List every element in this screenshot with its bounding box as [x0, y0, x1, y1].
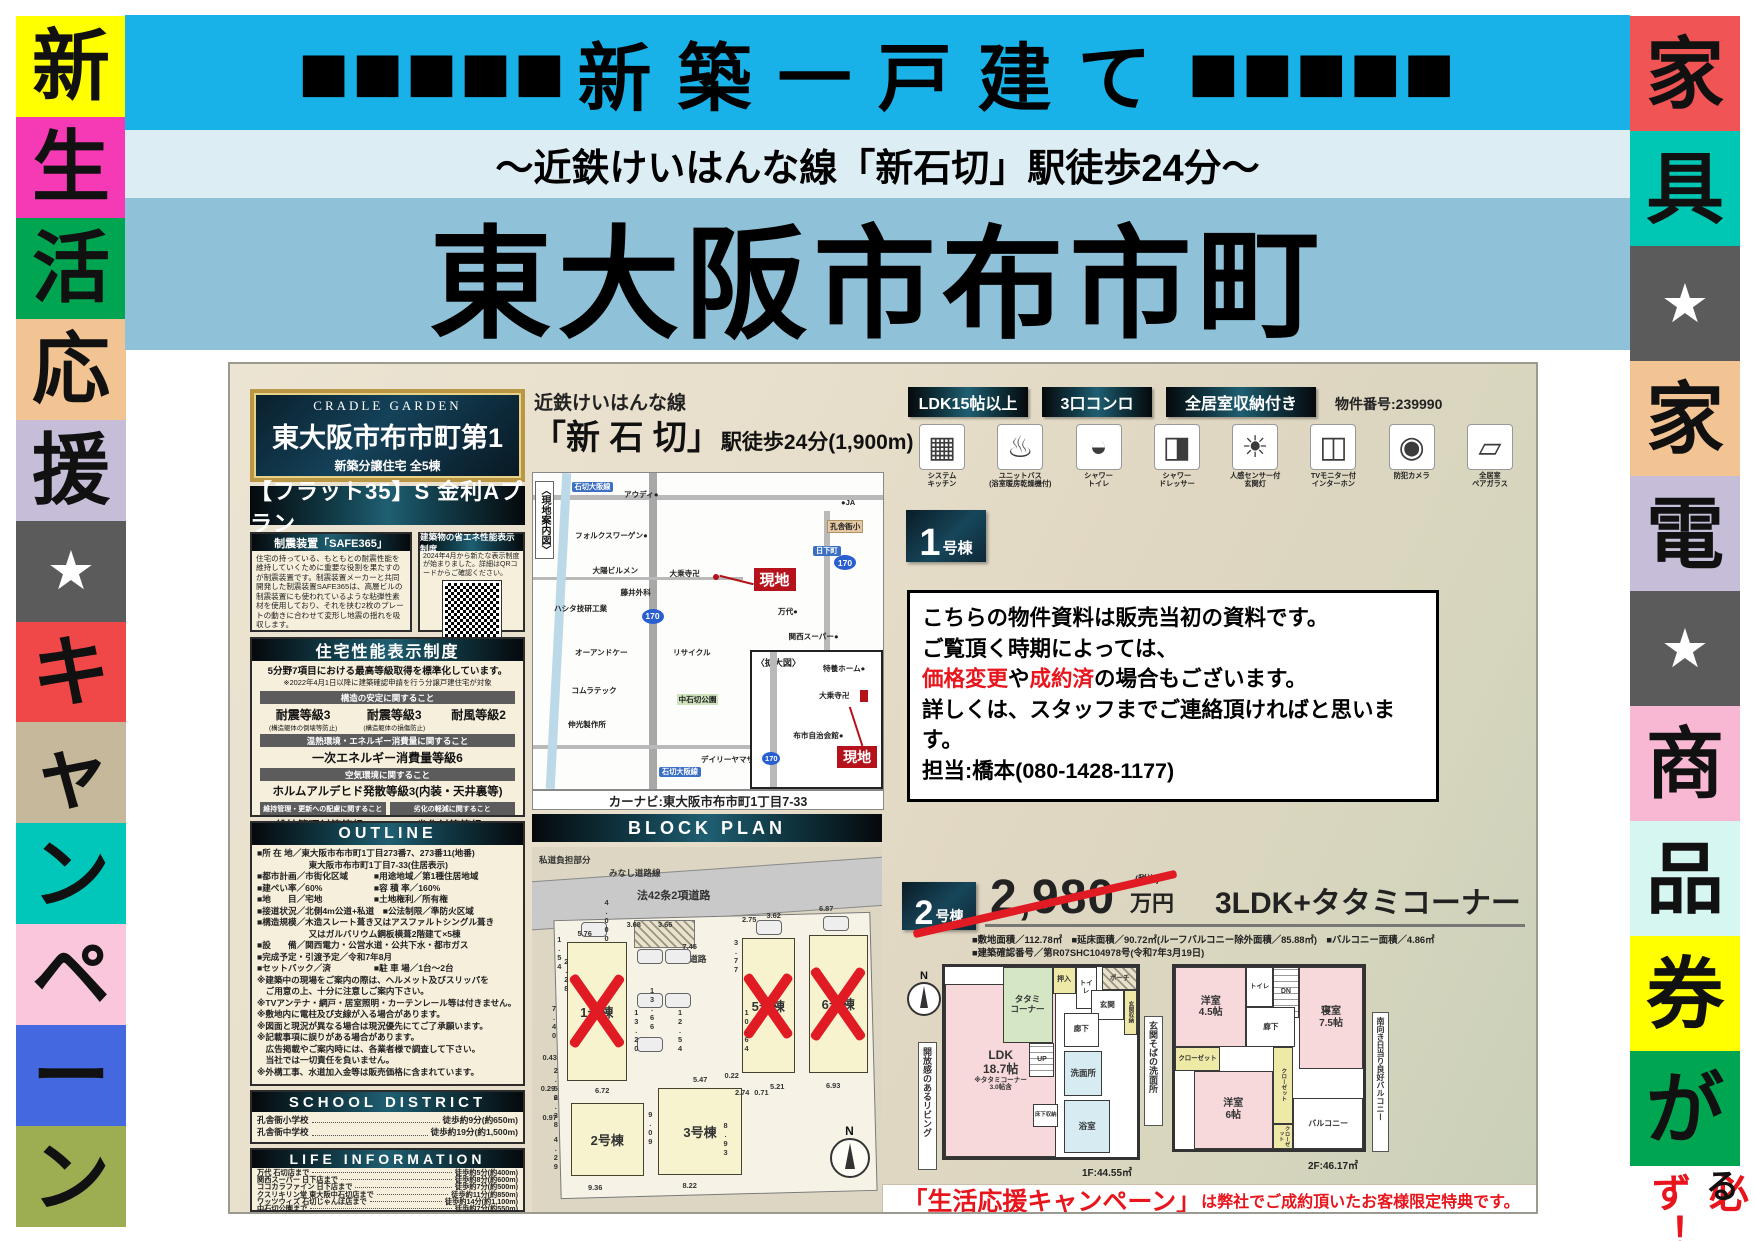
lot-name: 1号棟 — [580, 1002, 613, 1021]
seismic-grade: 耐震等級3 — [363, 706, 425, 723]
kitchen-icon: ▦ — [919, 424, 965, 470]
outline-row: 広告掲載やご案内時には、各業者様で調査して下さい。 — [257, 1044, 518, 1056]
feature-badge: 全居室収納付き — [1166, 387, 1316, 417]
security-camera-icon: ◉ — [1389, 424, 1435, 470]
performance-lead2: ※2022年4月1日以降に建築確認申請を行う分譲戸建住宅が対象 — [252, 677, 523, 688]
outline-row: ※記載事項に誤りがある場合があります。 — [257, 1032, 518, 1044]
notice-line: こちらの物件資料は販売当初の資料です。 — [922, 603, 1424, 634]
outline-row: ※TVアンテナ・網戸・居室照明・カーテンレール等は付きません。 — [257, 998, 518, 1010]
dim-label: 0.29 — [541, 1084, 555, 1093]
map-poi-label: ●JA — [841, 498, 855, 507]
outline-row: ※外構工事、水道加入金等は販売価格に含まれています。 — [257, 1067, 518, 1079]
price-unit: 万円 — [1130, 886, 1174, 918]
strip-moraeru-text: もらえる — [1695, 1168, 1755, 1241]
feature-badge: LDK15帖以上 — [908, 387, 1028, 417]
energy-grade: 一次エネルギー消費量等級6 — [252, 749, 523, 766]
poi-name: 中石切公園まで — [257, 1205, 307, 1212]
plaque-title: 東大阪市布市町第1 — [272, 416, 503, 455]
strip-char: キ — [16, 622, 126, 723]
life-information-box: LIFE INFORMATION 万代 石切店まで徒歩約5分(約400m) 関西… — [250, 1148, 525, 1212]
plan-label: 法42条2項道路 — [637, 887, 710, 903]
notice-line: 価格変更や成約済の場合もございます。 — [922, 664, 1424, 695]
seismic-grade-sub: (構造躯体の損傷防止) — [363, 723, 425, 732]
dim-label: 13.66 — [648, 986, 657, 1031]
map-poi-label: 万代● — [778, 606, 798, 617]
performance-bar4b: 劣化の軽減に関すること — [390, 802, 516, 815]
feature-item: ◨ シャワー ドレッサー — [1141, 424, 1213, 489]
map-poi-label: 大陽ビルメン — [593, 565, 639, 576]
feature-label: ユニットバス (浴室暖房乾燥機付) — [989, 472, 1051, 489]
feature-badge: 3口コンロ — [1042, 387, 1152, 417]
map-inset: 〈拡大図〉 特養ホーム● 大乗寺卍 布市自治会館● 170 現地 — [750, 650, 883, 789]
feature-label: システム キッチン — [928, 472, 957, 489]
room-tatami: タタミ コーナー — [1003, 967, 1053, 1043]
compass-icon: N — [906, 970, 942, 1016]
contact-line: 担当:橋本(080-1428-1177) — [922, 756, 1424, 787]
route-170-shield: 170 — [834, 555, 856, 570]
dim-label: 13.20 — [632, 1008, 641, 1053]
map-road-tag: 日下町 — [813, 546, 841, 556]
strip-char: ペ — [16, 924, 126, 1025]
lot-name: 3号棟 — [683, 1122, 716, 1141]
strip-char: 品 — [1630, 821, 1740, 936]
school-row: 孔舎衙小学校徒歩約9分(約650m) — [257, 1114, 518, 1126]
unit2-spec1: ■敷地面積／112.78㎡ ■延床面積／90.72㎡(ルーフバルコニー除外面積／… — [972, 932, 1532, 946]
room-oshiire: 押入 — [1053, 967, 1076, 994]
wind-grade: 耐風等級2 — [451, 706, 506, 732]
qr-code — [443, 581, 501, 639]
feature-label: TVモニター付 インターホン — [1311, 472, 1356, 489]
strip-char: 家 — [1630, 16, 1740, 131]
pair-glass-icon: ▱ — [1467, 424, 1513, 470]
notice-text: や — [1008, 667, 1030, 691]
car-outline — [637, 949, 663, 964]
lot-6: 6号棟 — [809, 935, 869, 1074]
map-poi-label: ハシタ技研工業 — [554, 603, 607, 614]
main-title: 東大阪市布市町 — [125, 198, 1630, 350]
left-campaign-strip: 新 生 活 応 援 ★ キ ャ ン ペ ー ン — [16, 16, 126, 1227]
block-plan-title: BLOCK PLAN — [532, 814, 882, 842]
energy-body: 2024年4月から新たな表示制度が始まりました。詳細はQRコードからご確認くださ… — [420, 551, 523, 580]
dim-label: 4.29 — [551, 1135, 560, 1171]
dim-label: 3.62 — [767, 911, 781, 920]
performance-bar3: 空気環境に関すること — [260, 768, 515, 781]
feature-item: ◫ TVモニター付 インターホン — [1297, 424, 1369, 489]
strip-char: 家 — [1630, 361, 1740, 476]
outline-row: ■接道状況／北側4m公道+私道 ■公法制限／準防火区域 — [257, 906, 518, 918]
strip-char: 電 — [1630, 476, 1740, 591]
room-porch: ポーチ — [1102, 967, 1137, 990]
dim-label: 3.66 — [658, 920, 672, 929]
outline-row: 当社では一切責任を負いません。 — [257, 1055, 518, 1067]
fp2-area: 2F:46.17㎡ — [1308, 1157, 1358, 1172]
car-outline — [665, 949, 691, 964]
school-row: 孔舎衙中学校徒歩約19分(約1,500m) — [257, 1126, 518, 1138]
school-distance: 徒歩約19分(約1,500m) — [431, 1126, 518, 1138]
feature-item: ◒ シャワー トイレ — [1063, 424, 1135, 489]
station-name: 「新 石 切」 — [532, 419, 721, 457]
room-closet: クローゼット — [1273, 1047, 1294, 1123]
map-poi-label: リサイクル — [673, 647, 711, 658]
dim-label: 5.21 — [770, 1082, 784, 1091]
plan-label: みなし道路線 — [609, 867, 661, 879]
dim-label: 6.72 — [595, 1086, 609, 1095]
stairs-up: UP — [1029, 1043, 1054, 1077]
feature-item: ♨ ユニットバス (浴室暖房乾燥機付) — [984, 424, 1056, 489]
floor-plan-type: 3LDK+タタミコーナー — [1215, 878, 1521, 922]
strip-char: ャ — [16, 722, 126, 823]
road-line — [770, 652, 777, 787]
notice-text: の場合もございます。 — [1094, 667, 1307, 691]
outline-row: ■構造規模／木造スレート葺き又はアスファルトシングル葺き — [257, 917, 518, 929]
lot-2: 2号棟 — [571, 1103, 645, 1176]
room-floor-storage: 床下収納 — [1033, 1104, 1058, 1127]
unit-suffix: 号棟 — [943, 537, 973, 558]
safe365-body: 住宅の持っている、もともとの耐震性能を維持していくために重要な役割を果たすのが制… — [252, 551, 410, 633]
room-closet: クローゼット — [1273, 1124, 1294, 1149]
site-pointer-line — [849, 707, 863, 746]
strip-char: 活 — [16, 218, 126, 319]
room-label: LDK 18.7帖 — [983, 1049, 1018, 1077]
carnavi-address: カーナビ:東大阪市布市町1丁目7-33 — [532, 790, 884, 810]
feature-item: ▦ システム キッチン — [906, 424, 978, 489]
station-walk-time: 駅徒歩24分(1,900m) — [721, 431, 914, 454]
dim-label: 0.22 — [725, 1071, 739, 1080]
performance-bar4a: 維持管理・更新への配慮に関すること — [260, 802, 386, 815]
car-outline — [665, 993, 691, 1008]
lot-1: 1号棟 — [567, 942, 627, 1081]
school-name: 孔舎衙小学校 — [257, 1114, 309, 1126]
dim-label: 2.74 — [735, 1088, 749, 1097]
map-temple-label: 大乗寺卍 — [670, 568, 700, 579]
dim-label: 2.75 — [742, 915, 756, 924]
unit-number: 2 — [915, 896, 934, 930]
strip-char: 援 — [16, 420, 126, 521]
car-outline — [756, 920, 782, 935]
feature-item: ◉ 防犯カメラ — [1376, 424, 1448, 489]
map-road-tag: 石切大阪線 — [572, 482, 614, 492]
fp1-callout-right: 玄関そばの洗面所 — [1144, 1016, 1163, 1126]
compass-icon: N — [830, 1124, 870, 1180]
room-hall: 廊下 — [1246, 1007, 1295, 1047]
banner-squares-right: ■■■■■ — [1188, 30, 1458, 116]
brand-plaque: CRADLE GARDEN 東大阪市布市町第1 新築分譲住宅 全5棟 — [250, 389, 525, 482]
notice-line: 詳しくは、スタッフまでご連絡頂ければと思います。 — [922, 695, 1424, 756]
map-poi-label: コムラテック — [572, 685, 617, 696]
safe365-title: 制震装置「SAFE365」 — [252, 534, 410, 551]
price-change-text: 価格変更 — [922, 667, 1008, 691]
dim-label: 0.97 — [543, 1113, 557, 1122]
intercom-icon: ◫ — [1310, 424, 1356, 470]
map-poi-label: アウディ● — [624, 489, 658, 500]
strip-char: 券 — [1630, 936, 1740, 1051]
dim-label: 2.38 — [551, 1093, 560, 1129]
strip-char: ン — [16, 823, 126, 924]
right-campaign-strip: 家 具 ★ 家 電 ★ 商 品 券 が — [1630, 16, 1740, 1166]
floorplan-2f: 洋室 4.5帖 トイレ DN 寝室 7.5帖 廊下 クローゼット 洋室 6帖 ク… — [1172, 964, 1366, 1152]
map-temple-label: 大乗寺卍 — [819, 690, 849, 701]
car-outline — [823, 916, 849, 931]
star-icon: ★ — [1630, 591, 1740, 706]
school-district-box: SCHOOL DISTRICT 孔舎衙小学校徒歩約9分(約650m) 孔舎衙中学… — [250, 1090, 525, 1144]
map-poi-label: 布市自治会館● — [793, 730, 843, 741]
campaign-highlight: 「生活応援キャンペーン」 — [902, 1182, 1201, 1214]
outline-row: 東大阪市布市町1丁目7-33(住居表示) — [257, 860, 518, 872]
map-poi-label: 関西スーパー● — [789, 631, 839, 642]
lot-name: 2号棟 — [591, 1130, 624, 1149]
dim-label: 5.76 — [578, 929, 592, 938]
feature-item: ☀ 人感センサー付 玄関灯 — [1219, 424, 1291, 489]
room-senmen: 洗面所 — [1064, 1051, 1102, 1097]
dim-label: 4.000 — [602, 898, 611, 943]
feature-label: 全居室 ペアガラス — [1472, 472, 1508, 489]
map-school-label: 孔舎衙小 — [827, 520, 863, 533]
room-yoshitsu-45: 洋室 4.5帖 — [1175, 967, 1246, 1047]
map-poi-label: 伸光製作所 — [568, 719, 606, 730]
safe365-box: 制震装置「SAFE365」 住宅の持っている、もともとの耐震性能を維持していくた… — [250, 532, 412, 632]
banner-squares-left: ■■■■■ — [298, 30, 568, 116]
school-name: 孔舎衙中学校 — [257, 1126, 309, 1138]
dim-label: 9.09 — [646, 1110, 655, 1146]
outline-row: ■地 目／宅地 ■土地権利／所有権 — [257, 894, 518, 906]
divider-line — [985, 924, 1525, 927]
flat35-banner: 【フラット35】S 金利Aプラン — [250, 486, 525, 525]
sold-out-text: 成約済 — [1030, 667, 1095, 691]
dim-label: 0.43 — [543, 1053, 557, 1062]
site-marker: 現地 — [754, 568, 796, 591]
fp2-callout-right: 南向き日当り良好バルコニー — [1372, 1012, 1389, 1152]
unit1-badge: 1 号棟 — [906, 510, 986, 562]
map-road-tag: 石切大阪線 — [659, 767, 701, 777]
property-number: 物件番号:239990 — [1335, 394, 1442, 414]
campaign-rest: は弊社でご成約頂いたお客様限定特典です。 — [1201, 1188, 1519, 1212]
outline-row: ■完成予定・引渡予定／令和7年8月 — [257, 952, 518, 964]
outline-row: ※図面と現況が異なる場合は現況優先にてご了承願います。 — [257, 1021, 518, 1033]
flyer-page: 新 生 活 応 援 ★ キ ャ ン ペ ー ン 家 具 ★ 家 電 ★ 商 品 … — [0, 0, 1755, 1241]
strip-char: ン — [16, 1126, 126, 1227]
feature-label: シャワー トイレ — [1084, 472, 1113, 489]
banner-title: 新築一戸建て — [578, 19, 1178, 126]
lot-name: 5号棟 — [752, 996, 785, 1015]
strip-char: 生 — [16, 117, 126, 218]
outline-row: ■都市計画／市街化区域 ■用途地域／第1種住居地域 — [257, 871, 518, 883]
car-outline — [637, 1037, 663, 1052]
strip-char: ー — [16, 1025, 126, 1126]
block-plan: 私道負担部分 みなし道路線 法42条2項道路 協定道路 1号棟 2号棟 3号棟 … — [532, 847, 882, 1212]
route-170-shield: 170 — [642, 609, 664, 624]
outline-row: ※建築中の現場をご案内の際は、ヘルメット及びスリッパを — [257, 975, 518, 987]
dim-label: 2.28 — [562, 957, 571, 993]
life-row: 中石切公園まで徒歩約7分(約550m) — [257, 1205, 518, 1212]
floorplan-1f: LDK 18.7帖 ※タタミコーナー 3.0帖含 タタミ コーナー 押入 UP … — [942, 964, 1140, 1160]
fp1-area: 1F:44.55㎡ — [1082, 1164, 1132, 1179]
lot-name: 6号棟 — [822, 994, 855, 1013]
road-line — [533, 495, 883, 500]
campaign-banner: 「生活応援キャンペーン」 は弊社でご成約頂いたお客様限定特典です。 — [882, 1184, 1538, 1214]
performance-lead1: 5分野7項目における最高等級取得を標準化しています。 — [252, 663, 523, 677]
outline-row: ■設 備／関西電力・公営水道・公共下水・都市ガス — [257, 940, 518, 952]
shower-dresser-icon: ◨ — [1154, 424, 1200, 470]
inset-title: 〈拡大図〉 — [756, 656, 801, 669]
performance-title: 住宅性能表示制度 — [252, 639, 523, 661]
plan-label: 私道負担部分 — [539, 854, 591, 866]
room-genkan-storage: 玄関収納 — [1124, 990, 1137, 1036]
school-district-title: SCHOOL DISTRICT — [252, 1092, 523, 1112]
school-distance: 徒歩約9分(約650m) — [443, 1114, 518, 1126]
room-hall: 廊下 — [1064, 1013, 1099, 1047]
life-information-title: LIFE INFORMATION — [252, 1150, 523, 1168]
plaque-subtitle: 新築分譲住宅 全5棟 — [334, 457, 440, 474]
room-balcony: バルコニー — [1293, 1098, 1363, 1149]
outline-row: 又はガルバリウム鋼板横葺2階建て×5棟 — [257, 929, 518, 941]
outline-row: ■所 在 地／東大阪市布市町1丁目273番7、273番11(地番) — [257, 848, 518, 860]
performance-bar2: 温熱環境・エネルギー消費量に関すること — [260, 734, 515, 747]
site-dot — [860, 690, 868, 702]
bath-icon: ♨ — [997, 424, 1043, 470]
dim-label: 5.47 — [693, 1075, 707, 1084]
room-shinshitsu: 寝室 7.5帖 — [1299, 967, 1363, 1069]
strip-char: 具 — [1630, 131, 1740, 246]
road-line — [649, 473, 657, 789]
dim-label: 8.93 — [721, 1121, 730, 1157]
outline-row: ■セットバック／済 ■駐 車 場／1台～2台 — [257, 963, 518, 975]
dim-label: 12.54 — [676, 1008, 685, 1053]
dim-label: 10.64 — [742, 1008, 751, 1053]
notice-box: こちらの物件資料は販売当初の資料です。 ご覧頂く時期によっては、 価格変更や成約… — [907, 590, 1439, 802]
dim-label: 3.68 — [627, 920, 641, 929]
map-poi-label: フォルクスワーゲン● — [575, 530, 648, 541]
notice-line: ご覧頂く時期によっては、 — [922, 634, 1424, 665]
unit-number: 1 — [919, 524, 940, 562]
compass-n: N — [830, 1124, 870, 1138]
route-170-shield: 170 — [762, 752, 780, 765]
feature-label: シャワー ドレッサー — [1159, 472, 1195, 489]
dim-label: 9.36 — [588, 1183, 602, 1192]
unit2-spec2: ■建築確認番号／第R07SHC104978号(令和7年3月19日) — [972, 945, 1532, 959]
feature-icon-row: ▦ システム キッチン ♨ ユニットバス (浴室暖房乾燥機付) ◒ シャワー ト… — [906, 424, 1526, 489]
map-poi-label: オーアンドケー — [575, 647, 628, 658]
map-poi-label: 特養ホーム● — [823, 663, 865, 674]
room-toilet: トイレ — [1246, 967, 1272, 1007]
strip-char: 応 — [16, 319, 126, 420]
dim-label: 6.87 — [819, 904, 833, 913]
area-map: 〈現地案内図〉 石切大阪線 アウディ● ●JA フォルクスワーゲン● 孔舎衙小 … — [532, 472, 884, 790]
dim-label: 7.45 — [683, 942, 697, 951]
station-walk-label: 「新 石 切」駅徒歩24分(1,900m) — [532, 410, 882, 459]
shower-toilet-icon: ◒ — [1076, 424, 1122, 470]
strip-char: が — [1630, 1051, 1740, 1166]
room-yoshitsu-6: 洋室 6帖 — [1194, 1071, 1273, 1149]
star-icon: ★ — [1630, 246, 1740, 361]
dim-label: 8.22 — [683, 1181, 697, 1190]
site-marker: 現地 — [837, 746, 877, 768]
dim-label: 6.93 — [826, 1081, 840, 1090]
flyer-scan: CRADLE GARDEN 東大阪市布市町第1 新築分譲住宅 全5棟 【フラット… — [228, 362, 1538, 1214]
poi-distance: 徒歩約7分(約550m) — [455, 1205, 518, 1212]
dim-label: 0.71 — [754, 1088, 768, 1097]
outline-box: OUTLINE ■所 在 地／東大阪市布市町1丁目273番7、273番11(地番… — [250, 821, 525, 1086]
map-guide-label: 〈現地案内図〉 — [535, 481, 554, 559]
strip-char: 新 — [16, 16, 126, 117]
dim-label: 3.77 — [732, 938, 741, 974]
lot-5: 5号棟 — [742, 938, 795, 1073]
outline-row: ご用意の上、十分に注意しご案内下さい。 — [257, 986, 518, 998]
map-park-label: 中石切公園 — [677, 694, 719, 705]
feature-label: 人感センサー付 玄関灯 — [1230, 472, 1280, 489]
performance-box: 住宅性能表示制度 5分野7項目における最高等級取得を標準化しています。 ※202… — [250, 637, 525, 817]
fp1-callout-left: 開放感のあるリビング — [918, 1042, 937, 1170]
room-bath: 浴室 — [1064, 1100, 1110, 1153]
room-note: ※タタミコーナー 3.0帖含 — [974, 1077, 1027, 1092]
feature-item: ▱ 全居室 ペアガラス — [1454, 424, 1526, 489]
map-poi-label: 藤井外科 — [621, 587, 651, 598]
star-icon: ★ — [16, 521, 126, 622]
sensor-light-icon: ☀ — [1232, 424, 1278, 470]
formaldehyde-grade: ホルムアルデヒド発散等級3(内装・天井裏等) — [252, 783, 523, 799]
energy-box: 建築物の省エネ性能表示制度 2024年4月から新たな表示制度が始まりました。詳細… — [418, 532, 525, 632]
performance-bar1: 構造の安定に関すること — [260, 691, 515, 704]
seismic-grade-sub: (構造躯体の倒壊等防止) — [269, 723, 337, 732]
top-banner: ■■■■■ 新築一戸建て ■■■■■ — [125, 15, 1630, 130]
outline-row: ※敷地内に電柱及び支線が入る場合があります。 — [257, 1009, 518, 1021]
room-closet: クローゼット — [1175, 1047, 1220, 1071]
feature-label: 防犯カメラ — [1394, 472, 1430, 480]
outline-row: ■建ぺい率／60% ■容 積 率／160% — [257, 883, 518, 895]
energy-title: 建築物の省エネ性能表示制度 — [420, 534, 523, 551]
dim-label: 7.40 — [550, 1004, 559, 1040]
outline-title: OUTLINE — [252, 823, 523, 845]
strip-char: 商 — [1630, 706, 1740, 821]
seismic-grade: 耐震等級3 — [269, 706, 337, 723]
brand-name: CRADLE GARDEN — [313, 398, 461, 414]
